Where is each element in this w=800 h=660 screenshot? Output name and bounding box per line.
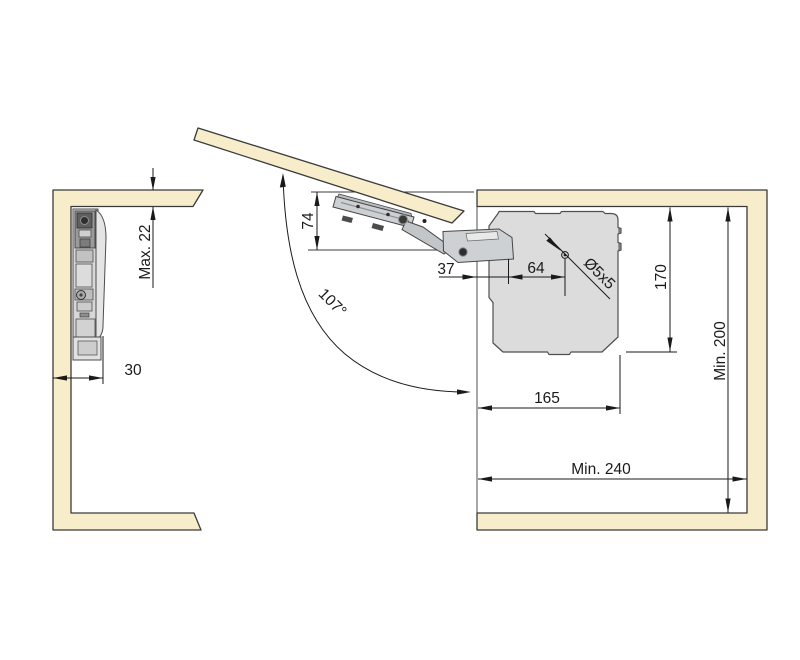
dimension-min-depth: Min. 200 [712,208,731,513]
housing-segment [76,319,95,337]
dimension-label-170: 170 [653,264,670,290]
mount-foot [372,223,385,231]
lift-mechanism-side-view [73,209,106,360]
adjustment-screw-center [79,293,82,296]
dimension-label-min240: Min. 240 [571,461,631,478]
dimension-body-length: 165 [478,355,620,414]
bracket-detail [79,230,91,237]
arrowhead-left [478,476,492,481]
mount-foot [342,216,354,224]
arrowhead-down [667,338,672,352]
mechanism-arm-profile [96,210,106,340]
foot-detail [78,341,97,355]
bracket-detail [80,239,90,247]
link-screw [423,219,427,223]
mount-screw [386,213,390,217]
dimension-arm-height: 74 [300,192,320,250]
clamp-pivot-screw [459,248,467,256]
arrowhead-right [457,389,471,394]
arrowhead-right [89,375,103,380]
dimension-label-107: 107° [315,285,350,320]
dimension-min-inner-width: Min. 240 [478,461,747,482]
housing-segment [77,302,92,311]
door-panel-open [194,128,464,223]
mount-screw [356,205,360,209]
arrowhead-right [606,405,620,410]
dimension-label-37: 37 [437,261,454,278]
housing-segment [76,250,93,262]
dimension-body-height: 170 [626,208,677,353]
dimension-label-min200: Min. 200 [712,321,729,381]
housing-segment [80,313,89,317]
dimension-label-64: 64 [527,260,545,277]
clamp-slot [466,232,499,242]
arrowhead-left [478,405,492,410]
screw-head [81,217,89,225]
arrowhead-down [725,499,730,513]
arm-pivot [398,215,407,224]
dimension-panel-thickness: Max. 22 [137,168,156,288]
installation-diagram: Max. 22 30 74 37 64 Ø5x5 170 [0,0,800,660]
arrowhead-right [463,274,477,279]
dimension-label-165: 165 [534,390,560,407]
housing-segment [76,264,92,287]
arrowhead-up [280,173,286,188]
dimension-label-max22: Max. 22 [137,224,154,279]
arrowhead-up [667,208,672,222]
arrowhead-down [314,236,319,250]
arrowhead-up [150,207,155,221]
arrowhead-up [314,192,319,206]
arrowhead-up [725,208,730,222]
diagram-canvas: Max. 22 30 74 37 64 Ø5x5 170 [0,0,800,660]
arrowhead-down [150,177,155,191]
dimension-label-30: 30 [124,362,142,379]
dimension-label-74: 74 [300,212,317,230]
arrowhead-right [733,476,747,481]
